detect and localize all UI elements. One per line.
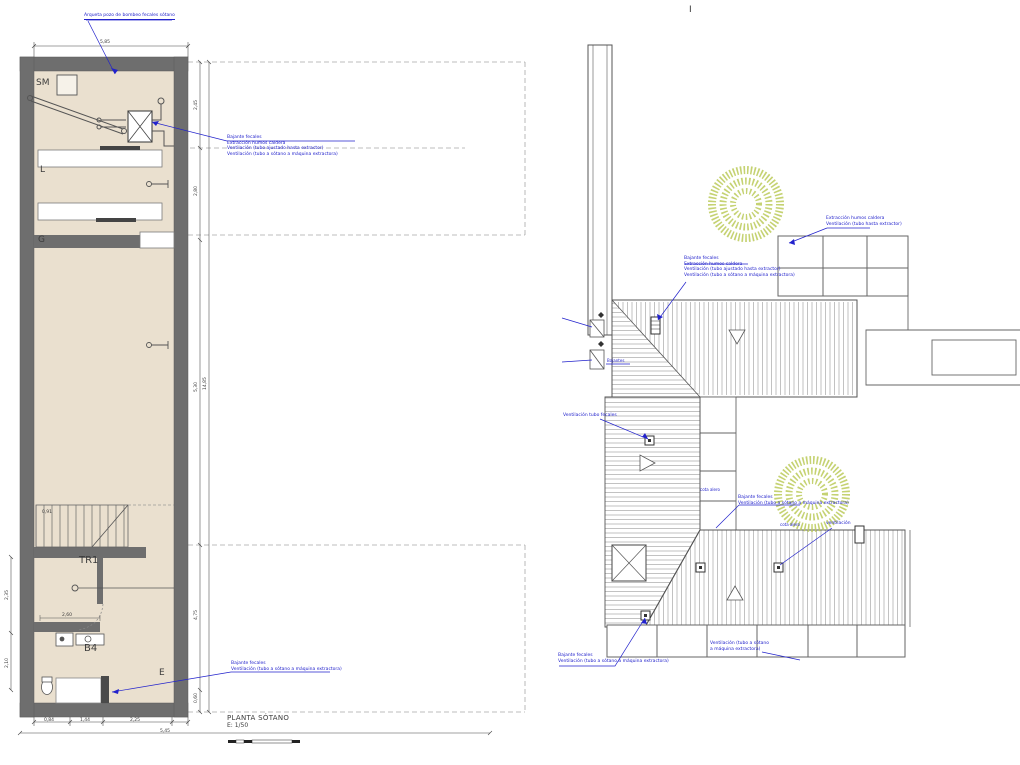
pergola-grid <box>778 236 908 296</box>
svg-text:1,44: 1,44 <box>80 717 90 723</box>
annotation-line: a máquina extractora) <box>710 647 769 653</box>
skylight <box>612 545 646 581</box>
box-column <box>700 397 736 530</box>
plan-scale: E: 1/50 <box>227 722 289 729</box>
approval-stamp <box>712 170 780 238</box>
left-plan-geometry: 5,85 2,45 2,80 5,30 14,85 4,75 0,60 0,84… <box>4 20 525 743</box>
svg-text:2,45: 2,45 <box>193 100 199 110</box>
svg-text:4,75: 4,75 <box>193 610 199 620</box>
room-label-e: E <box>159 669 165 678</box>
svg-text:14,85: 14,85 <box>202 377 208 390</box>
sheet-mark: I <box>689 5 692 15</box>
right-plan-geometry <box>559 45 1020 666</box>
svg-text:0,60: 0,60 <box>193 693 199 703</box>
annotation-riser-top: Bajante fecales Extracción humos caldera… <box>227 135 338 157</box>
annotation-line: Ventilación (tubo ajustado hasta extract… <box>684 267 795 273</box>
annotation-cota-1: cota alero <box>700 487 720 493</box>
svg-text:0,84: 0,84 <box>44 717 54 723</box>
svg-text:2,80: 2,80 <box>193 186 199 196</box>
right-band <box>866 296 1020 385</box>
annotation-line: Ventilación (tubo a sótano a máquina ext… <box>227 152 338 158</box>
annotation-arqueta: Arqueta pozo de bombeo fecales sótano <box>84 13 175 20</box>
annotation-pergola: Extracción humos caldera Ventilación (tu… <box>826 216 902 227</box>
lintel-bar <box>96 218 136 222</box>
dashed-boundary-lines <box>174 62 525 712</box>
annotation-line: Ventilación (tubo ajustado hasta extract… <box>227 146 338 152</box>
annotation-line: Ventilación (tubo a sótano a máquina ext… <box>738 501 849 507</box>
annotation-vent: ventilación <box>826 521 851 527</box>
room-label-l: L <box>40 166 45 175</box>
annotation-riser-mid: Bajante fecales Ventilación (tubo a sóta… <box>738 495 849 506</box>
annotation-line: Ventilación (tubo a sótano a máquina ext… <box>231 667 342 673</box>
door-jamb <box>101 676 109 703</box>
svg-text:0,91: 0,91 <box>42 509 52 515</box>
room-label-tr1: TR1 <box>79 556 98 565</box>
svg-text:5,45: 5,45 <box>160 728 170 734</box>
gutter-funnels <box>590 312 604 369</box>
annotation-line: Ventilación (tubo a sótano a máquina ext… <box>684 273 795 279</box>
upper-roof <box>612 300 857 397</box>
annotation-chimney: Bajante fecales Extracción humos caldera… <box>684 256 795 278</box>
svg-text:5,30: 5,30 <box>193 382 199 392</box>
svg-text:2,60: 2,60 <box>62 612 72 618</box>
extractor-box <box>128 111 152 142</box>
room-label-b4: B4 <box>84 644 97 653</box>
plans-geometry: 5,85 2,45 2,80 5,30 14,85 4,75 0,60 0,84… <box>0 0 1020 765</box>
annotation-line: Ventilación (tubo hasta extractor) <box>826 222 902 228</box>
room-label-g: G <box>38 236 45 245</box>
annotation-line: Ventilación (tubo a sótano <box>710 641 769 647</box>
scale-bar <box>228 740 300 743</box>
svg-text:2,25: 2,25 <box>130 717 140 723</box>
annotation-line: Ventilación (tubo a sótano a máquina ext… <box>558 659 669 665</box>
svg-text:2,10: 2,10 <box>4 658 10 668</box>
annotation-edge: Bajantes <box>607 358 624 364</box>
party-wall-strip <box>588 45 612 335</box>
svg-text:2,35: 2,35 <box>4 590 10 600</box>
annotation-riser-bottom-right: Bajante fecales Ventilación (tubo a sóta… <box>558 653 669 664</box>
lintel-bar <box>100 146 140 150</box>
annotation-vent-bottom: Ventilación (tubo a sótano a máquina ext… <box>710 641 769 652</box>
annotation-riser-bottom: Bajante fecales Ventilación (tubo a sóta… <box>231 661 342 672</box>
drawing-canvas: 5,85 2,45 2,80 5,30 14,85 4,75 0,60 0,84… <box>0 0 1020 765</box>
approval-stamp <box>778 460 846 528</box>
arqueta-box <box>57 75 77 95</box>
svg-text:5,85: 5,85 <box>100 39 110 45</box>
annotation-arqueta-text: Arqueta pozo de bombeo fecales sótano <box>84 13 175 20</box>
annotation-cota-2: cota alero <box>780 522 800 528</box>
annotation-vent-mid: Ventilación tubo fecales <box>563 413 617 419</box>
title-block: PLANTA SÓTANO E: 1/50 <box>227 714 289 729</box>
plan-title: PLANTA SÓTANO <box>227 714 289 722</box>
room-label-sm: SM <box>36 79 49 88</box>
